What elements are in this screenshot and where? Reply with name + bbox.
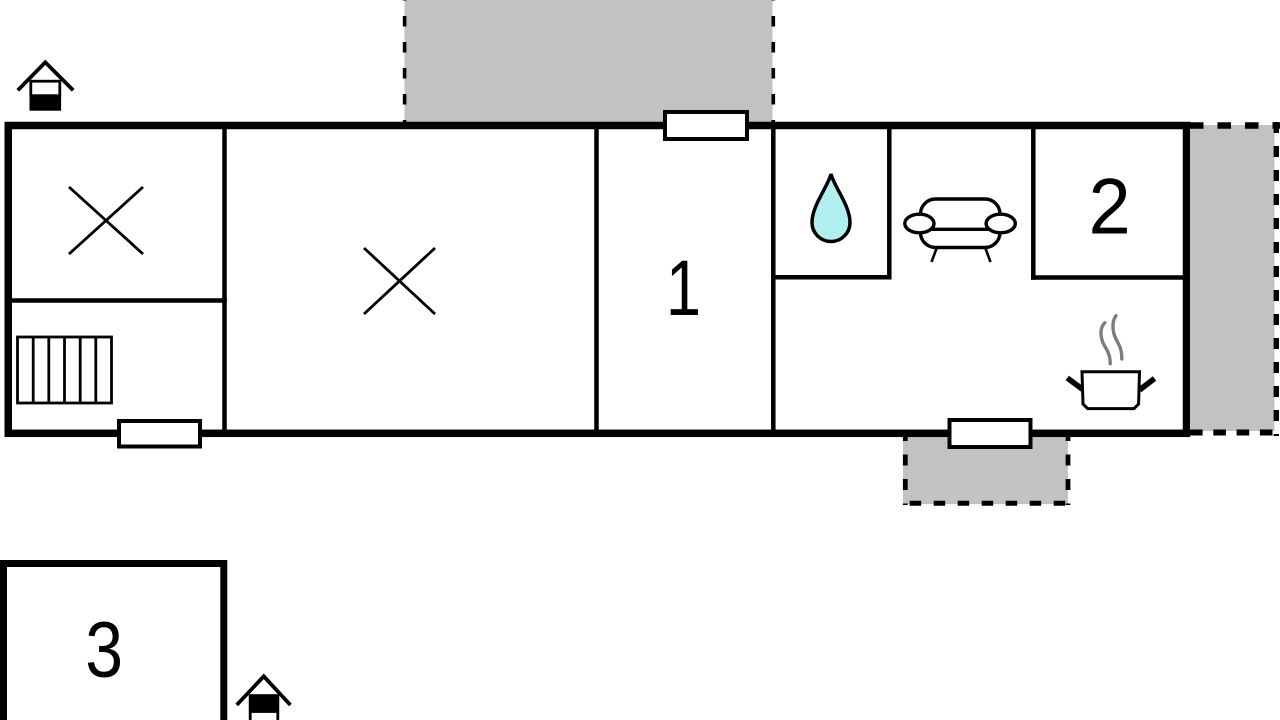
svg-text:2: 2 [1089, 163, 1131, 251]
svg-text:1: 1 [666, 244, 701, 332]
svg-text:3: 3 [85, 605, 123, 694]
